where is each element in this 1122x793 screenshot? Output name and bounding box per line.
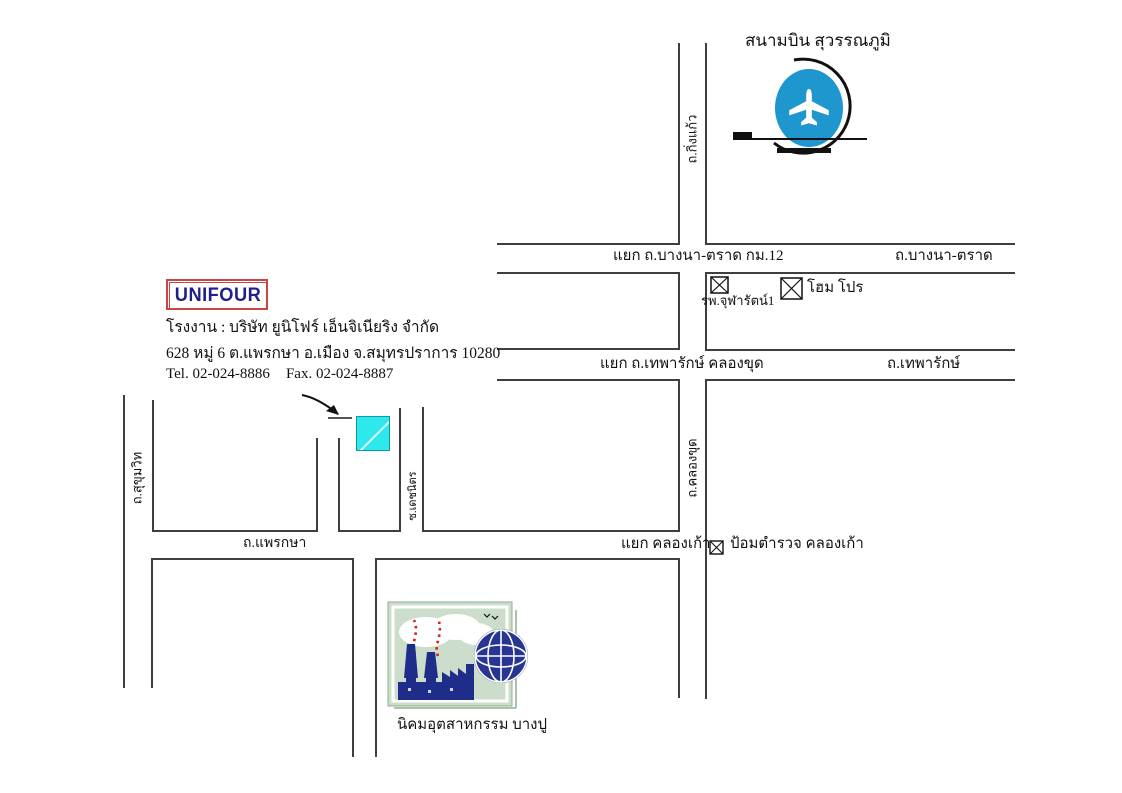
road-edge-line: [705, 272, 1015, 274]
company-phone-line: Tel. 02-024-8886Fax. 02-024-8887: [166, 366, 393, 383]
road-edge-line: [152, 530, 318, 532]
company-fax: Fax. 02-024-8887: [286, 366, 394, 382]
factory-location-marker: [356, 416, 390, 451]
junction-label-khlongkao: แยก คลองเก้า: [621, 536, 710, 553]
runway-line: [733, 138, 867, 140]
road-edge-line: [151, 558, 352, 560]
industrial-estate-label: นิคมอุตสาหกรรม บางปู: [397, 717, 547, 734]
road-edge-line: [375, 558, 680, 560]
road-edge-line: [375, 558, 377, 757]
road-edge-line: [705, 243, 1015, 245]
road-edge-line: [678, 379, 680, 532]
road-edge-line: [497, 272, 680, 274]
homepro-marker-icon: [780, 277, 803, 300]
junction-label-bangna: แยก ถ.บางนา-ตราด กม.12: [613, 248, 784, 265]
road-label-sukhumvit: ถ.สุขุมวิท: [127, 452, 148, 504]
industrial-estate-art: [384, 600, 530, 712]
road-edge-line: [678, 272, 680, 349]
unifour-logo-text: UNIFOUR: [175, 285, 261, 307]
road-label-bangna: ถ.บางนา-ตราด: [895, 248, 993, 265]
runway-line: [777, 148, 831, 153]
police-marker-icon: [709, 540, 724, 555]
junction-label-thepharak: แยก ถ.เทพารักษ์ คลองขุด: [600, 356, 764, 373]
pointer-arrow-icon: [298, 392, 358, 422]
hospital-label: รพ.จุฬารัตน์1: [701, 294, 774, 308]
road-edge-line: [497, 243, 680, 245]
road-edge-line: [338, 530, 401, 532]
company-address-line: 628 หมู่ 6 ต.แพรกษา อ.เมือง จ.สมุทรปรากา…: [166, 340, 500, 365]
road-edge-line: [705, 349, 1015, 351]
road-edge-line: [352, 558, 354, 757]
road-edge-line: [123, 395, 125, 688]
road-label-thepharak: ถ.เทพารักษ์: [887, 356, 960, 373]
road-edge-line: [497, 379, 680, 381]
road-edge-line: [152, 400, 154, 532]
homepro-label: โฮม โปร: [807, 280, 863, 297]
road-edge-line: [316, 438, 318, 532]
unifour-logo: UNIFOUR: [166, 279, 268, 310]
hospital-marker-icon: [710, 276, 729, 294]
road-edge-line: [338, 438, 340, 532]
airport-label: สนามบิน สุวรรณภูมิ: [745, 32, 891, 51]
road-label-khlongkhut: ถ.คลองขุด: [682, 438, 703, 497]
soi-label: ซ.เดชนิตร: [403, 471, 421, 520]
road-edge-line: [151, 558, 153, 688]
road-label-kingkaew: ถ.กิ่งแก้ว: [682, 115, 703, 164]
road-edge-line: [678, 560, 680, 698]
road-edge-line: [422, 407, 424, 532]
road-edge-line: [399, 408, 401, 532]
road-edge-line: [497, 348, 680, 350]
company-tel: Tel. 02-024-8886: [166, 366, 270, 382]
road-edge-line: [705, 272, 707, 350]
road-label-phraeksa: ถ.แพรกษา: [243, 536, 306, 551]
directions-map: สนามบิน สุวรรณภูมิ ถ.กิ่งแก้ว แยก ถ.บางน…: [0, 0, 1122, 793]
road-edge-line: [678, 43, 680, 244]
company-factory-line: โรงงาน : บริษัท ยูนิโฟร์ เอ็นจิเนียริง จ…: [166, 314, 439, 339]
road-edge-line: [705, 43, 707, 244]
airplane-icon: [787, 86, 831, 130]
police-label: ป้อมตำรวจ คลองเก้า: [730, 536, 864, 553]
road-edge-line: [705, 379, 1015, 381]
road-edge-line: [422, 530, 680, 532]
